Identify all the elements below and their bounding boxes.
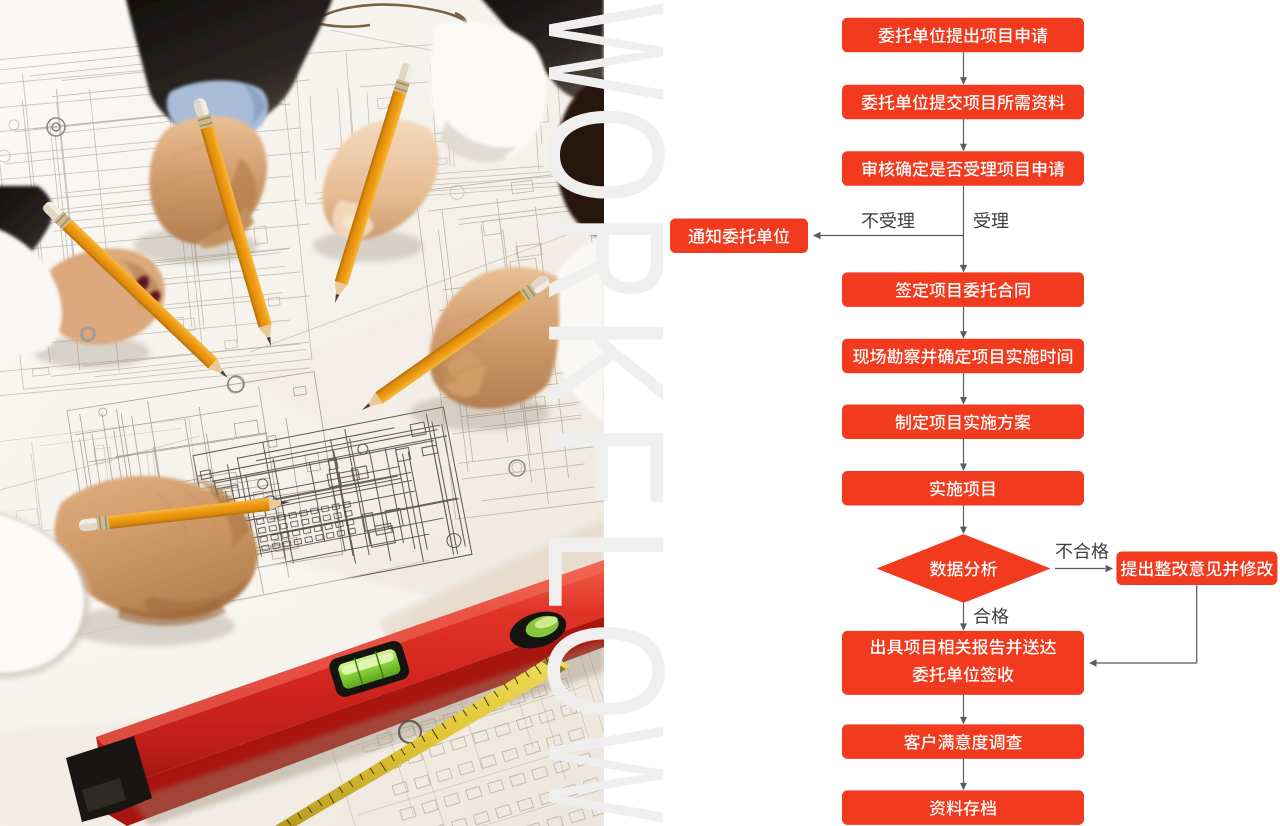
svg-text:F: F <box>513 422 698 508</box>
svg-text:O: O <box>513 621 698 721</box>
svg-text:W: W <box>513 3 698 100</box>
svg-text:O: O <box>513 105 698 205</box>
svg-text:W: W <box>513 726 698 823</box>
svg-text:K: K <box>513 315 698 407</box>
svg-text:L: L <box>513 525 698 611</box>
